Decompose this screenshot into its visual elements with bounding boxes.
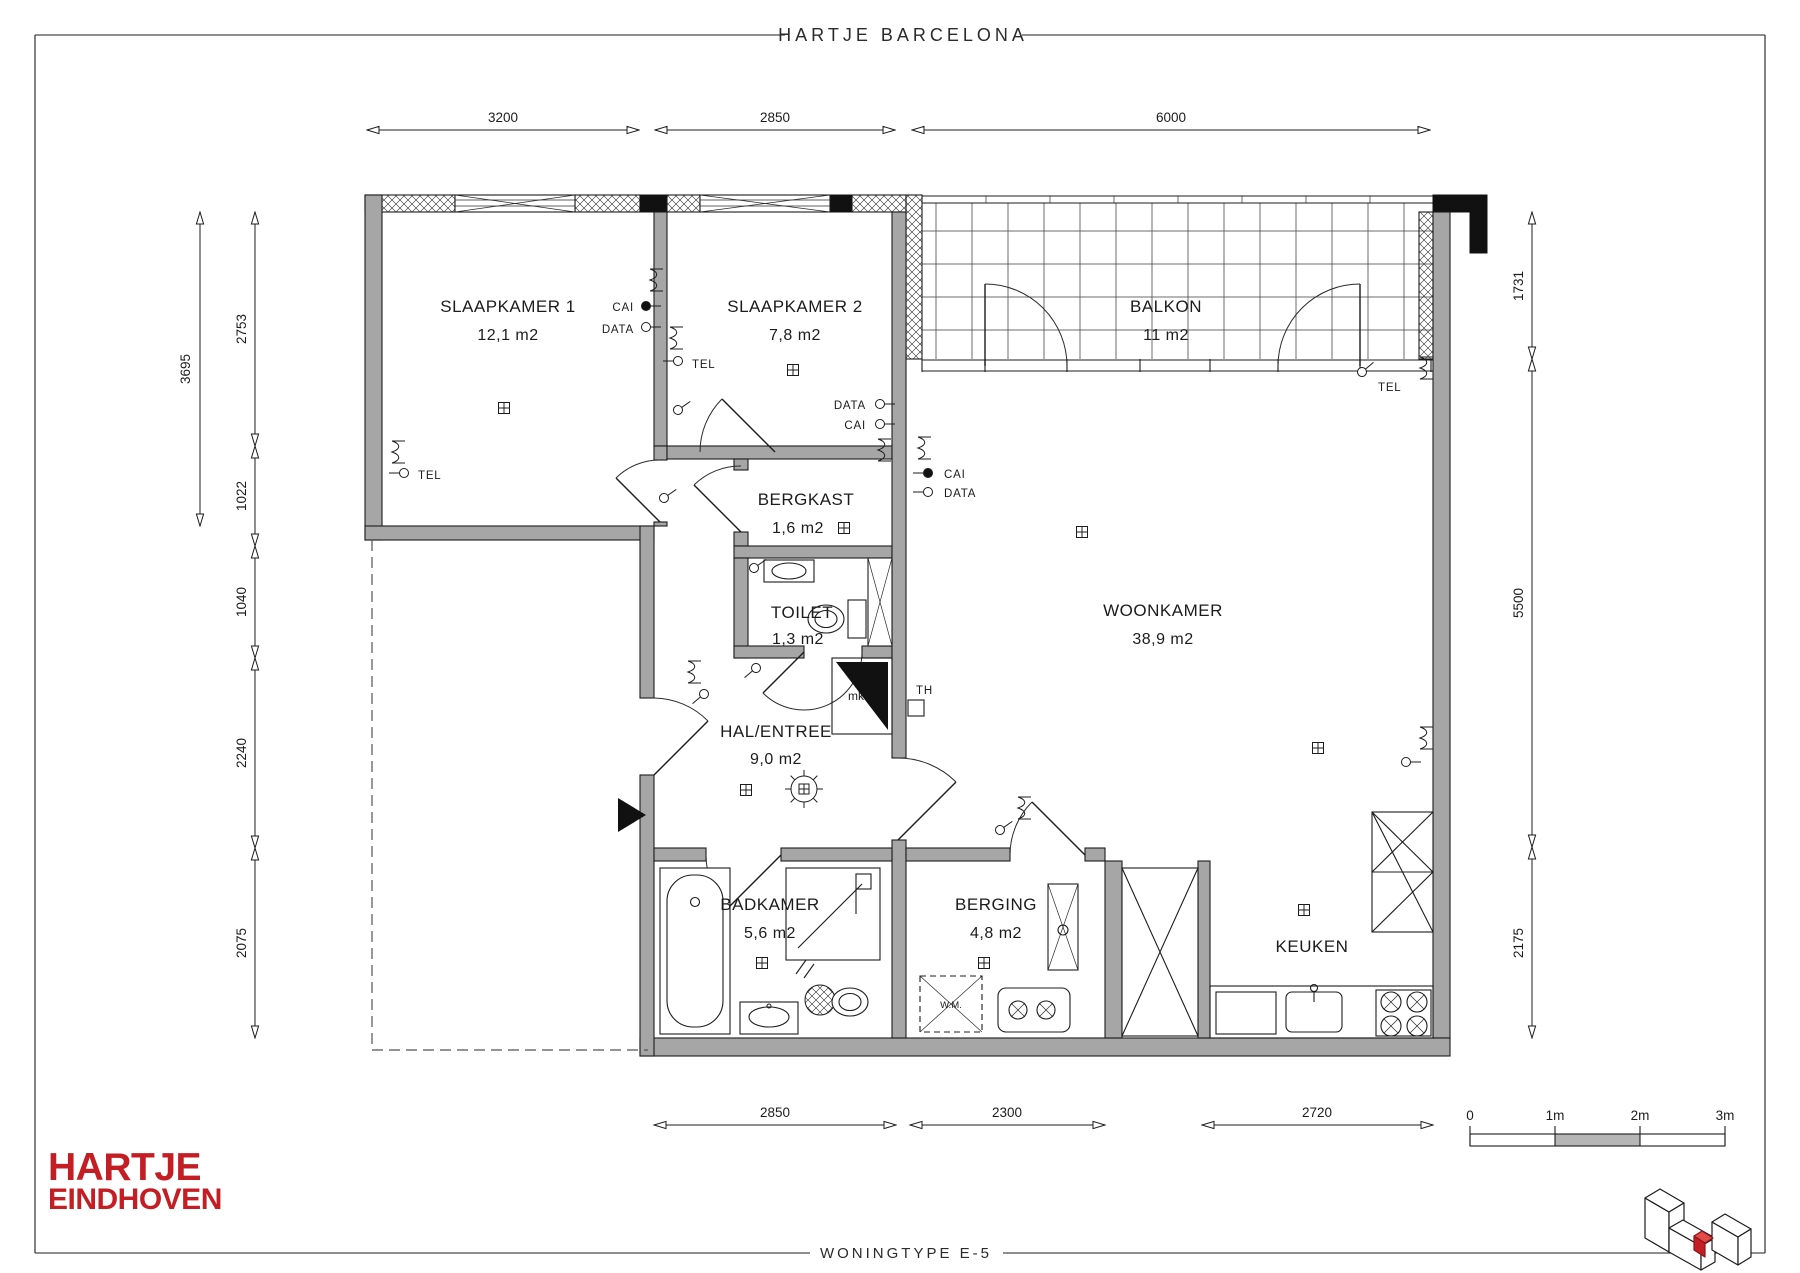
door-slaapkamer1 [616, 460, 660, 522]
dim-top-1: 3200 [488, 110, 518, 125]
kitchen-tall-unit [1372, 812, 1433, 932]
switch-icon [918, 437, 931, 459]
ceiling-point-icon [499, 403, 510, 414]
socket-icon [690, 688, 711, 707]
scale-2m: 2m [1631, 1108, 1650, 1123]
badkamer-sink [740, 1002, 798, 1034]
dim-left-2: 1022 [234, 481, 249, 511]
socket-icon [1402, 758, 1422, 767]
tel-label: TEL [1378, 382, 1402, 394]
cai-label: CAI [944, 469, 966, 481]
cai-socket-icon [913, 469, 933, 478]
ceiling-point-icon [979, 958, 990, 969]
dim-left-4: 2240 [234, 738, 249, 768]
switch-icon [1420, 727, 1433, 749]
wall-bergkast-stub-b [734, 532, 748, 546]
room-label-balkon: BALKON [1130, 297, 1202, 316]
wall-bottom-exterior [640, 1038, 1450, 1056]
wall-main-vertical-b [892, 840, 906, 1038]
dim-top-3: 6000 [1156, 110, 1186, 125]
badkamer-toilet [805, 985, 868, 1016]
dim-bottom-3: 2720 [1302, 1105, 1332, 1120]
room-label-slaapkamer2: SLAAPKAMER 2 [727, 297, 862, 316]
balcony-railing-posts [922, 196, 1433, 203]
door-slaapkamer2 [700, 399, 775, 452]
cai-label: CAI [612, 302, 634, 314]
wall-slk1-bottom [365, 526, 654, 540]
room-label-slaapkamer1: SLAAPKAMER 1 [440, 297, 575, 316]
property-dashed-outline [372, 540, 648, 1050]
wm-label: W.M. [940, 1000, 962, 1011]
room-area-balkon: 11 m2 [1143, 327, 1189, 344]
socket-icon [658, 486, 679, 505]
dim-bottom-2: 2300 [992, 1105, 1022, 1120]
ceiling-point-icon [757, 958, 768, 969]
hartje-eindhoven-logo: HARTJE EINDHOVEN [48, 1150, 222, 1213]
dim-left-3: 1040 [234, 587, 249, 617]
shower [786, 868, 880, 960]
room-label-hal: HAL/ENTREE [720, 722, 832, 741]
ceiling-point-icon [1077, 527, 1088, 538]
scale-1m: 1m [1546, 1108, 1565, 1123]
dim-right-2: 5500 [1511, 588, 1526, 618]
floorplan-sheet: HARTJE BARCELONA WONINGTYPE E-5 [0, 0, 1800, 1273]
room-label-berging: BERGING [955, 895, 1037, 914]
dim-left-1: 2753 [234, 314, 249, 344]
data-label: DATA [602, 324, 634, 336]
wall-berging-top-b [1085, 848, 1105, 861]
ceiling-point-icon [788, 365, 799, 376]
door-woonkamer [898, 758, 956, 840]
ceiling-point-icon [1313, 743, 1324, 754]
data-label: DATA [944, 488, 976, 500]
dim-right-3: 2175 [1511, 928, 1526, 958]
wall-left-lower-a [640, 526, 654, 698]
wall-closet-right [1198, 861, 1210, 1038]
room-label-bergkast: BERGKAST [758, 490, 855, 509]
scale-3m: 3m [1716, 1108, 1735, 1123]
wall-stub-b [654, 522, 667, 526]
data-socket-icon [913, 488, 933, 497]
room-label-keuken: KEUKEN [1276, 937, 1349, 956]
logo-line1: HARTJE [48, 1150, 222, 1186]
mk-label: mk [848, 689, 865, 703]
ceiling-point-icon [1299, 905, 1310, 916]
th-label: TH [916, 685, 933, 697]
berging-duct [1048, 884, 1078, 970]
electrical-symbols [389, 269, 1433, 969]
switch-icon [670, 327, 683, 349]
wall-berging-top-a [906, 848, 1010, 861]
ceiling-point-icon [839, 523, 850, 534]
tap-mark2 [804, 964, 814, 978]
wall-slk1-slk2 [654, 212, 667, 446]
wall-toilet-top [734, 546, 892, 558]
room-area-woonkamer: 38,9 m2 [1132, 631, 1193, 648]
socket-icon [994, 818, 1015, 837]
duct-shaft [868, 558, 892, 646]
wardrobe-closet [1122, 868, 1198, 1036]
bathtub [660, 868, 730, 1034]
room-area-toilet: 1,3 m2 [772, 631, 824, 648]
room-area-badkamer: 5,6 m2 [744, 925, 796, 942]
tap-mark [796, 960, 806, 974]
toilet-cistern [848, 600, 866, 638]
room-area-hal: 9,0 m2 [750, 751, 802, 768]
switch-icon [392, 441, 405, 463]
building-locator-icon [1645, 1189, 1751, 1270]
annotation-labels: CAI DATA TEL TEL DATA CAI CAI DATA TEL m… [418, 302, 1402, 1011]
wall-right-exterior [1433, 212, 1450, 1038]
room-label-woonkamer: WOONKAMER [1103, 601, 1223, 620]
kitchen-counter [1210, 985, 1433, 1039]
wall-left-exterior [365, 195, 382, 540]
ceiling-lamp-icon [785, 770, 823, 808]
facade-window-wall [922, 359, 1433, 372]
wall-main-vertical-a [892, 212, 906, 758]
dim-top-2: 2850 [760, 110, 790, 125]
wall-berging-right [1105, 861, 1122, 1038]
tel-socket-icon [389, 469, 409, 478]
tel-label: TEL [692, 359, 716, 371]
doors [616, 399, 1085, 908]
balcony [922, 196, 1433, 372]
switch-icon [1018, 797, 1031, 819]
socket-icon [742, 662, 763, 681]
room-area-slaapkamer1: 12,1 m2 [477, 327, 538, 344]
boiler-unit [998, 988, 1070, 1032]
cai-label: CAI [844, 420, 866, 432]
window-slaapkamer2 [700, 195, 830, 212]
room-label-badkamer: BADKAMER [720, 895, 819, 914]
room-area-berging: 4,8 m2 [970, 925, 1022, 942]
wall-toilet-bottom-b [862, 646, 892, 658]
wall-hal-bad-b [781, 848, 892, 861]
sheet-title: HARTJE BARCELONA [778, 25, 1028, 45]
wall-hal-bad-a [654, 848, 706, 861]
dim-left-5: 2075 [234, 928, 249, 958]
door-entry [618, 698, 708, 832]
wall-toilet-left [734, 558, 748, 658]
sheet-footer: WONINGTYPE E-5 [820, 1245, 992, 1262]
cooktop [1376, 990, 1431, 1036]
scale-bar: 0 1m 2m 3m [1466, 1108, 1734, 1146]
ceiling-point-icon [741, 785, 752, 796]
socket-icon [672, 398, 693, 417]
dim-right-1: 1731 [1511, 271, 1526, 301]
dim-bottom-1: 2850 [760, 1105, 790, 1120]
wall-stub-a [654, 446, 667, 460]
wall-slk2-bottom [667, 446, 892, 459]
window-slaapkamer1 [455, 195, 575, 212]
data-label: DATA [834, 400, 866, 412]
scale-0: 0 [1466, 1108, 1474, 1123]
room-area-bergkast: 1,6 m2 [772, 520, 824, 537]
switch-icon [688, 661, 701, 683]
wall-bergkast-stub-a [734, 459, 748, 470]
tel-label: TEL [418, 470, 442, 482]
door-berging [1010, 802, 1085, 855]
thermostat-box [908, 700, 924, 716]
room-label-toilet: TOILET [771, 603, 833, 622]
fixtures [660, 558, 1433, 1038]
door-bergkast [694, 466, 741, 532]
room-area-slaapkamer2: 7,8 m2 [769, 327, 821, 344]
logo-line2: EINDHOVEN [48, 1186, 222, 1214]
dim-left-outer: 3695 [178, 354, 193, 384]
